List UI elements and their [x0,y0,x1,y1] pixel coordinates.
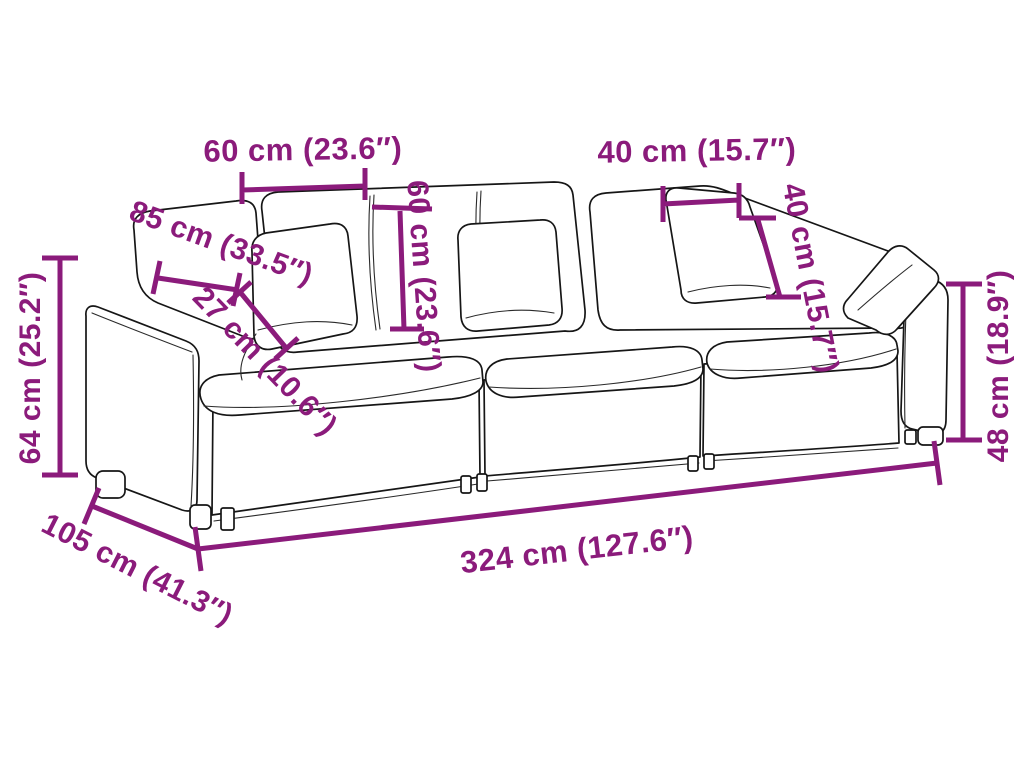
dim-label-backrest-width: 60 cm (23.6″) [203,130,402,168]
middle-leg-2 [477,474,487,491]
dim-overall-height-left: 64 cm (25.2″) [14,258,78,475]
dim-label-overall-width: 324 cm (127.6″) [458,519,695,580]
diagram-canvas: 60 cm (23.6″) 40 cm (15.7″) 85 cm (33.5″… [0,0,1024,768]
dim-line-arm-height [946,284,982,440]
dim-arm-height-right: 48 cm (18.9″) [946,270,1015,463]
dim-label-pillow-width: 40 cm (15.7″) [597,131,796,169]
sofa-dimension-diagram: 60 cm (23.6″) 40 cm (15.7″) 85 cm (33.5″… [0,0,1024,768]
pillow-middle [458,220,562,331]
dim-label-overall-height: 64 cm (25.2″) [14,272,47,465]
dim-line-overall-height [42,258,78,475]
middle-leg-4 [704,454,714,469]
left-module-leg [221,508,234,530]
middle-leg-1 [461,476,471,493]
left-arm-foot [96,471,125,498]
left-module-foot [190,505,211,529]
right-arm-foot [918,427,943,445]
middle-leg-3 [688,456,698,471]
right-arm-leg [905,430,916,444]
dim-label-arm-height: 48 cm (18.9″) [982,270,1015,463]
